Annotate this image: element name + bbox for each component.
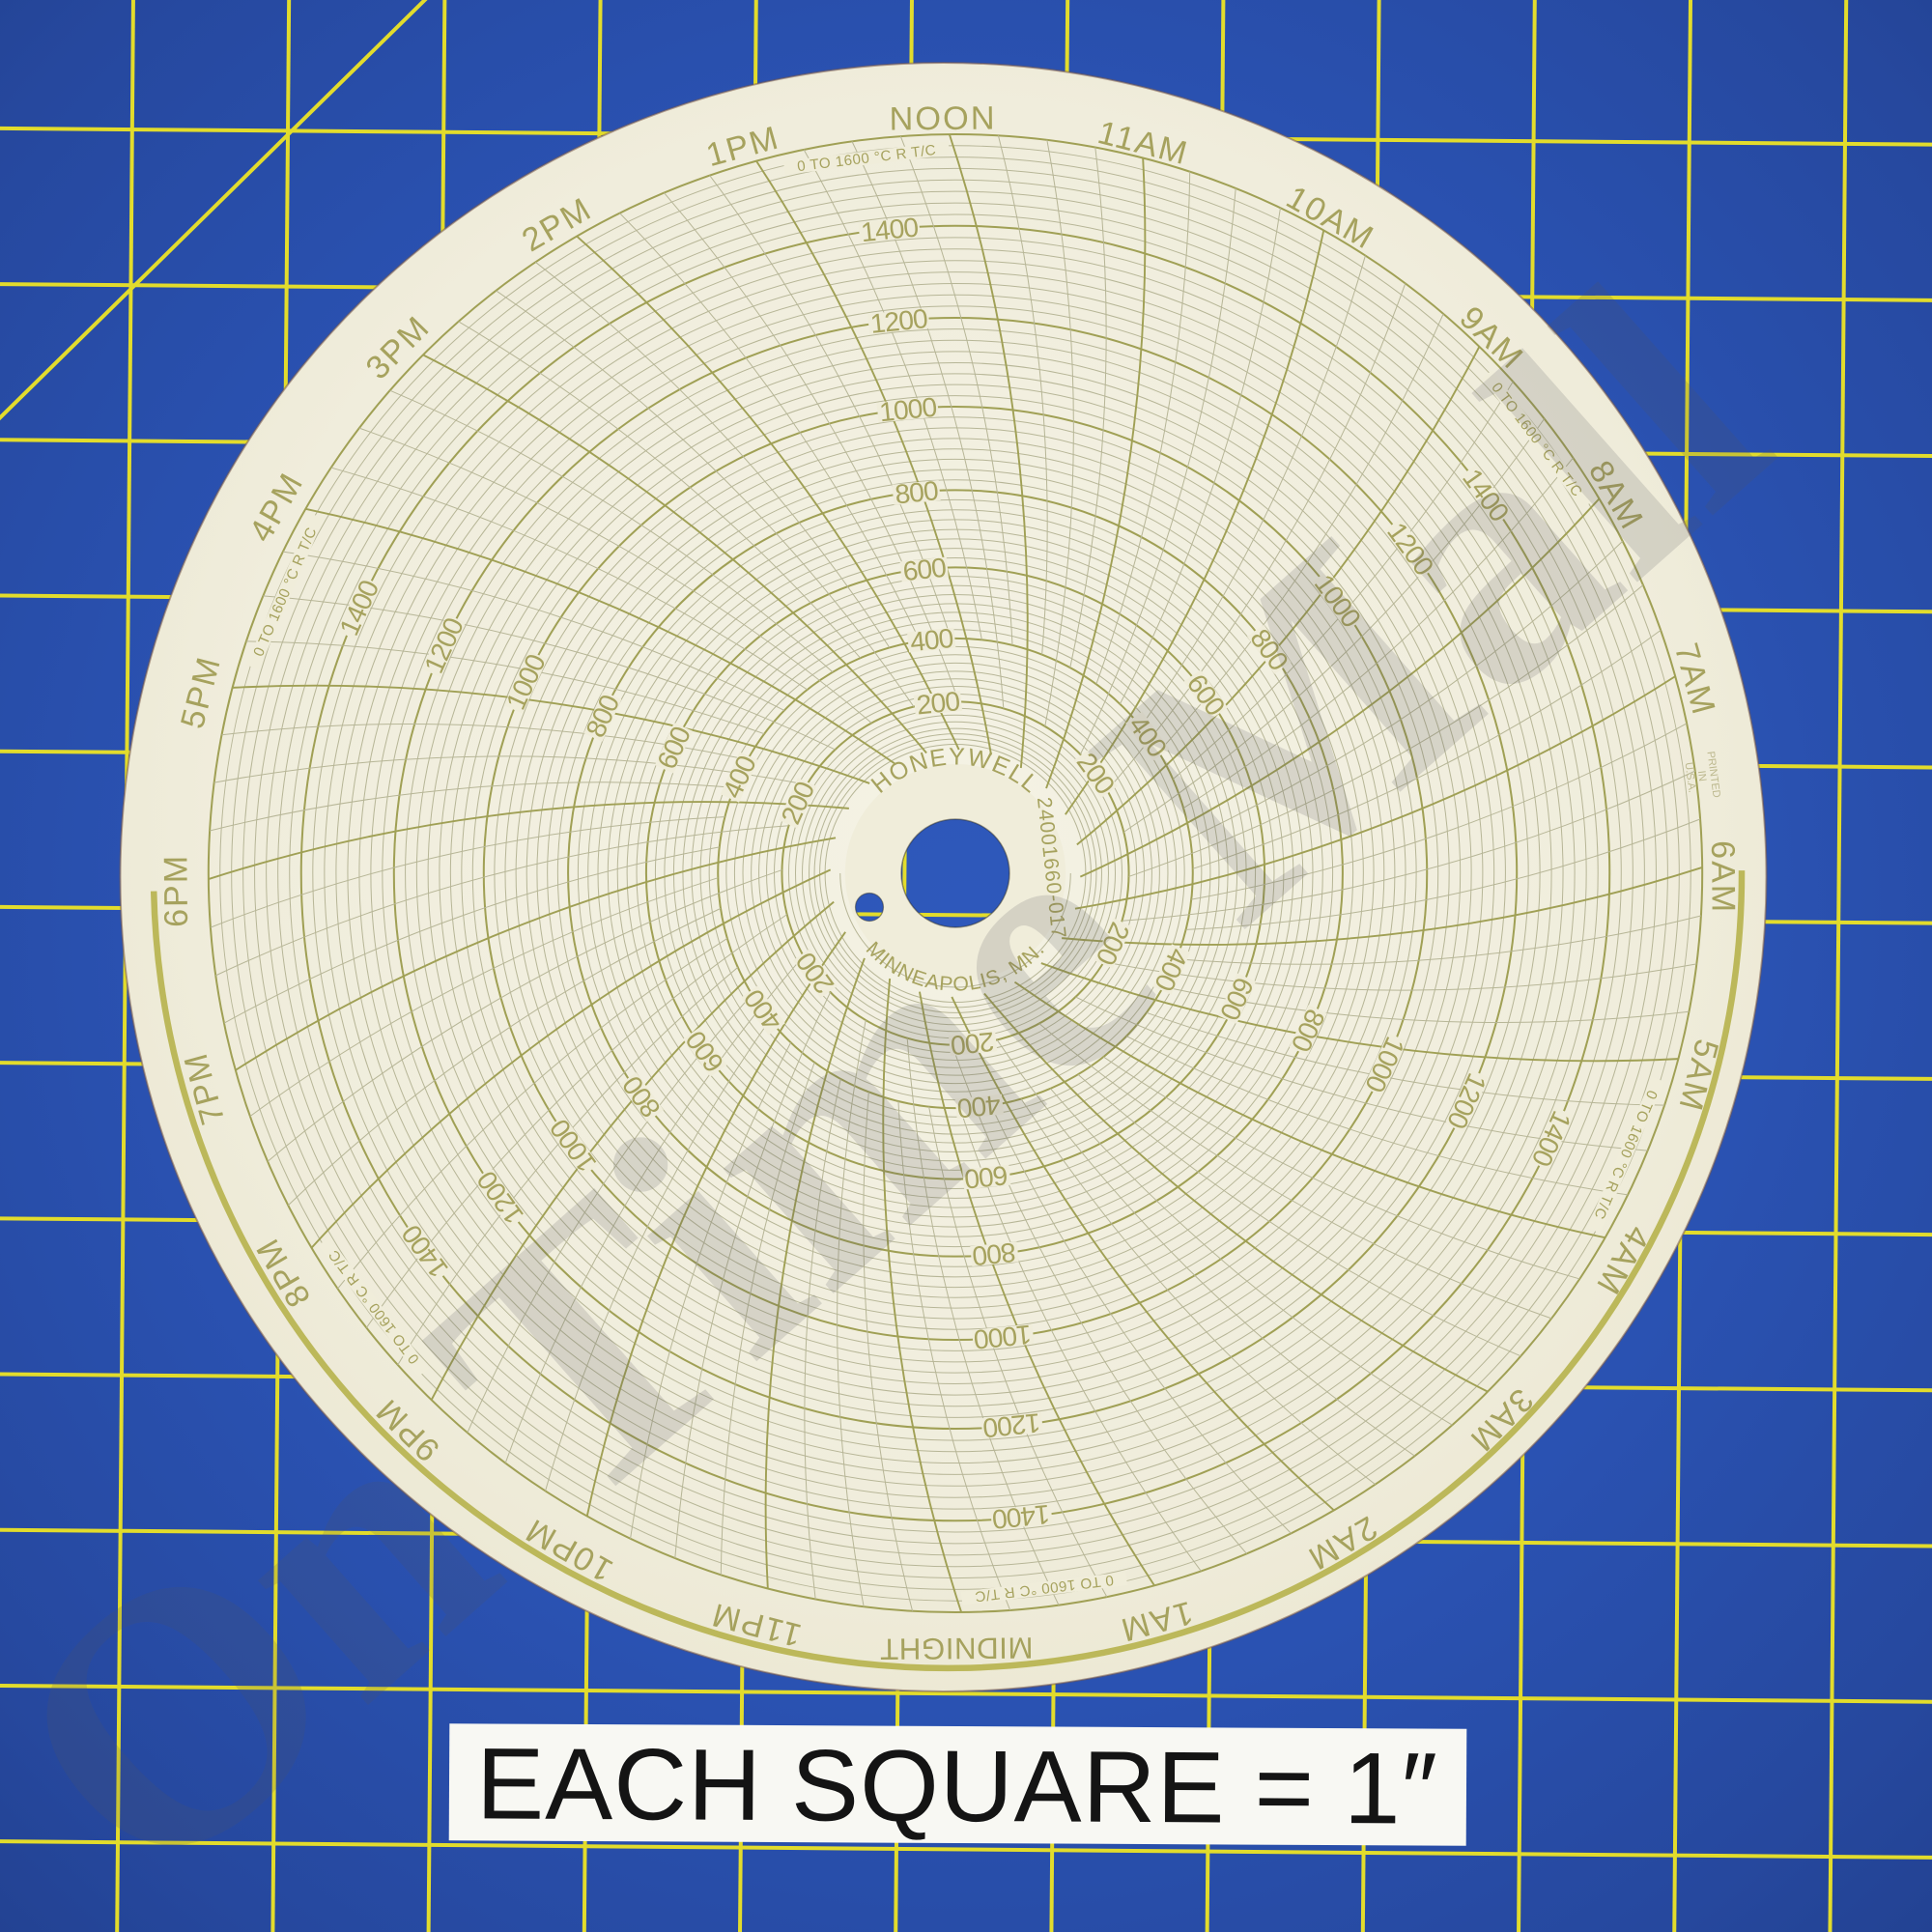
svg-text:MIDNIGHT: MIDNIGHT <box>879 1631 1033 1665</box>
svg-text:1200: 1200 <box>868 303 928 339</box>
svg-text:1000: 1000 <box>973 1320 1033 1355</box>
svg-text:6AM: 6AM <box>1704 840 1742 914</box>
svg-text:6PM: 6PM <box>157 854 195 927</box>
svg-text:1200: 1200 <box>981 1407 1041 1443</box>
svg-text:200: 200 <box>915 686 960 720</box>
svg-text:400: 400 <box>909 623 954 657</box>
svg-text:800: 800 <box>894 475 939 509</box>
svg-text:NOON: NOON <box>889 100 996 138</box>
svg-text:600: 600 <box>901 553 947 586</box>
svg-text:1400: 1400 <box>860 213 920 248</box>
svg-text:EACH SQUARE = 1″: EACH SQUARE = 1″ <box>476 1727 1438 1845</box>
svg-text:1000: 1000 <box>878 392 938 428</box>
svg-text:1400: 1400 <box>991 1499 1051 1535</box>
